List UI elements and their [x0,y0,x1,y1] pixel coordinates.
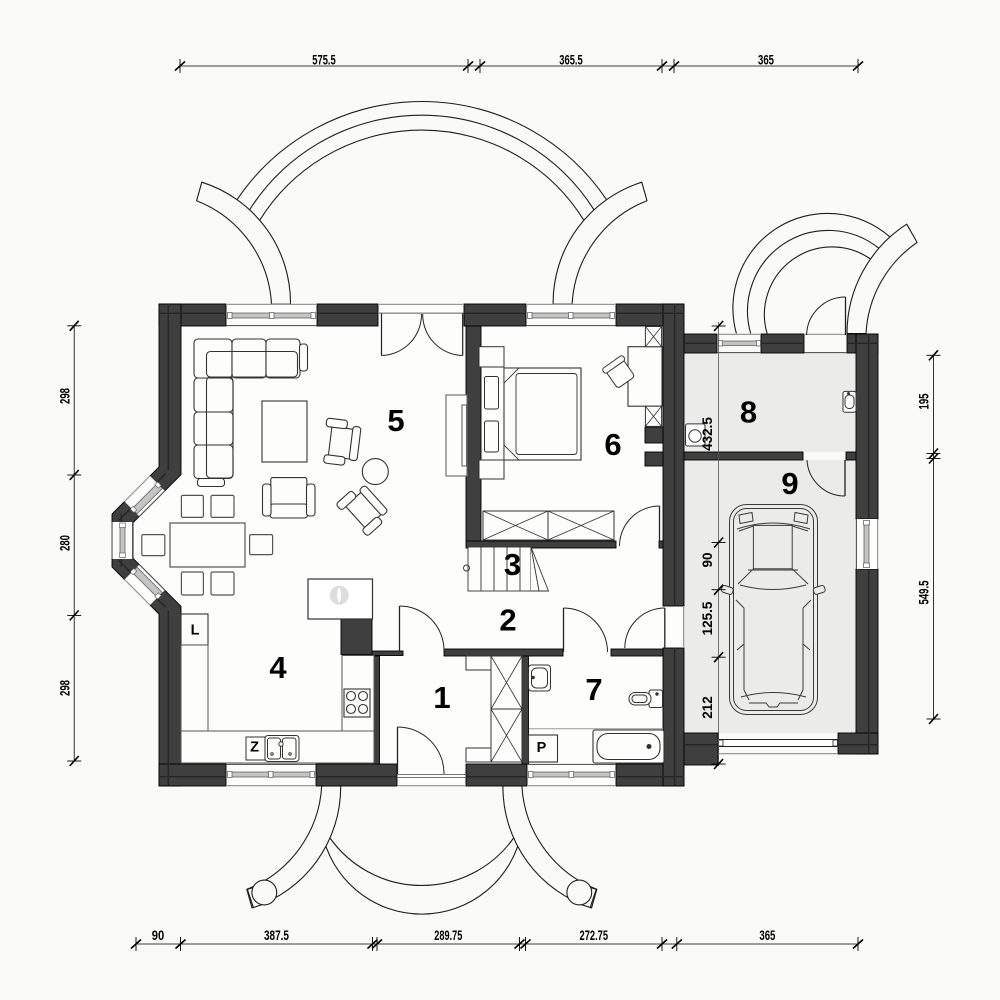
svg-text:7: 7 [585,672,602,707]
svg-text:Z: Z [250,740,259,756]
svg-text:1: 1 [433,680,450,715]
svg-text:387.5: 387.5 [264,928,289,943]
svg-text:8: 8 [740,395,757,430]
svg-text:4: 4 [269,650,287,685]
svg-text:2: 2 [499,603,516,638]
svg-text:5: 5 [387,403,404,438]
svg-text:L: L [191,623,200,639]
svg-text:549.5: 549.5 [917,580,932,604]
svg-text:365: 365 [759,928,775,943]
svg-text:272.75: 272.75 [580,928,609,943]
svg-text:365: 365 [758,53,774,68]
svg-text:195: 195 [917,393,932,409]
svg-text:3: 3 [504,547,521,582]
svg-text:9: 9 [781,466,798,501]
svg-text:432.5: 432.5 [700,417,715,451]
svg-text:280: 280 [58,535,73,551]
svg-text:P: P [537,740,547,756]
svg-text:298: 298 [58,388,73,404]
svg-text:298: 298 [58,680,73,696]
svg-text:365.5: 365.5 [559,53,583,68]
svg-text:90: 90 [700,552,715,567]
svg-text:6: 6 [604,427,621,462]
svg-text:90: 90 [152,928,165,943]
svg-text:125.5: 125.5 [700,601,715,635]
svg-text:575.5: 575.5 [312,53,336,68]
svg-text:212: 212 [700,696,715,719]
svg-text:289.75: 289.75 [434,928,462,943]
